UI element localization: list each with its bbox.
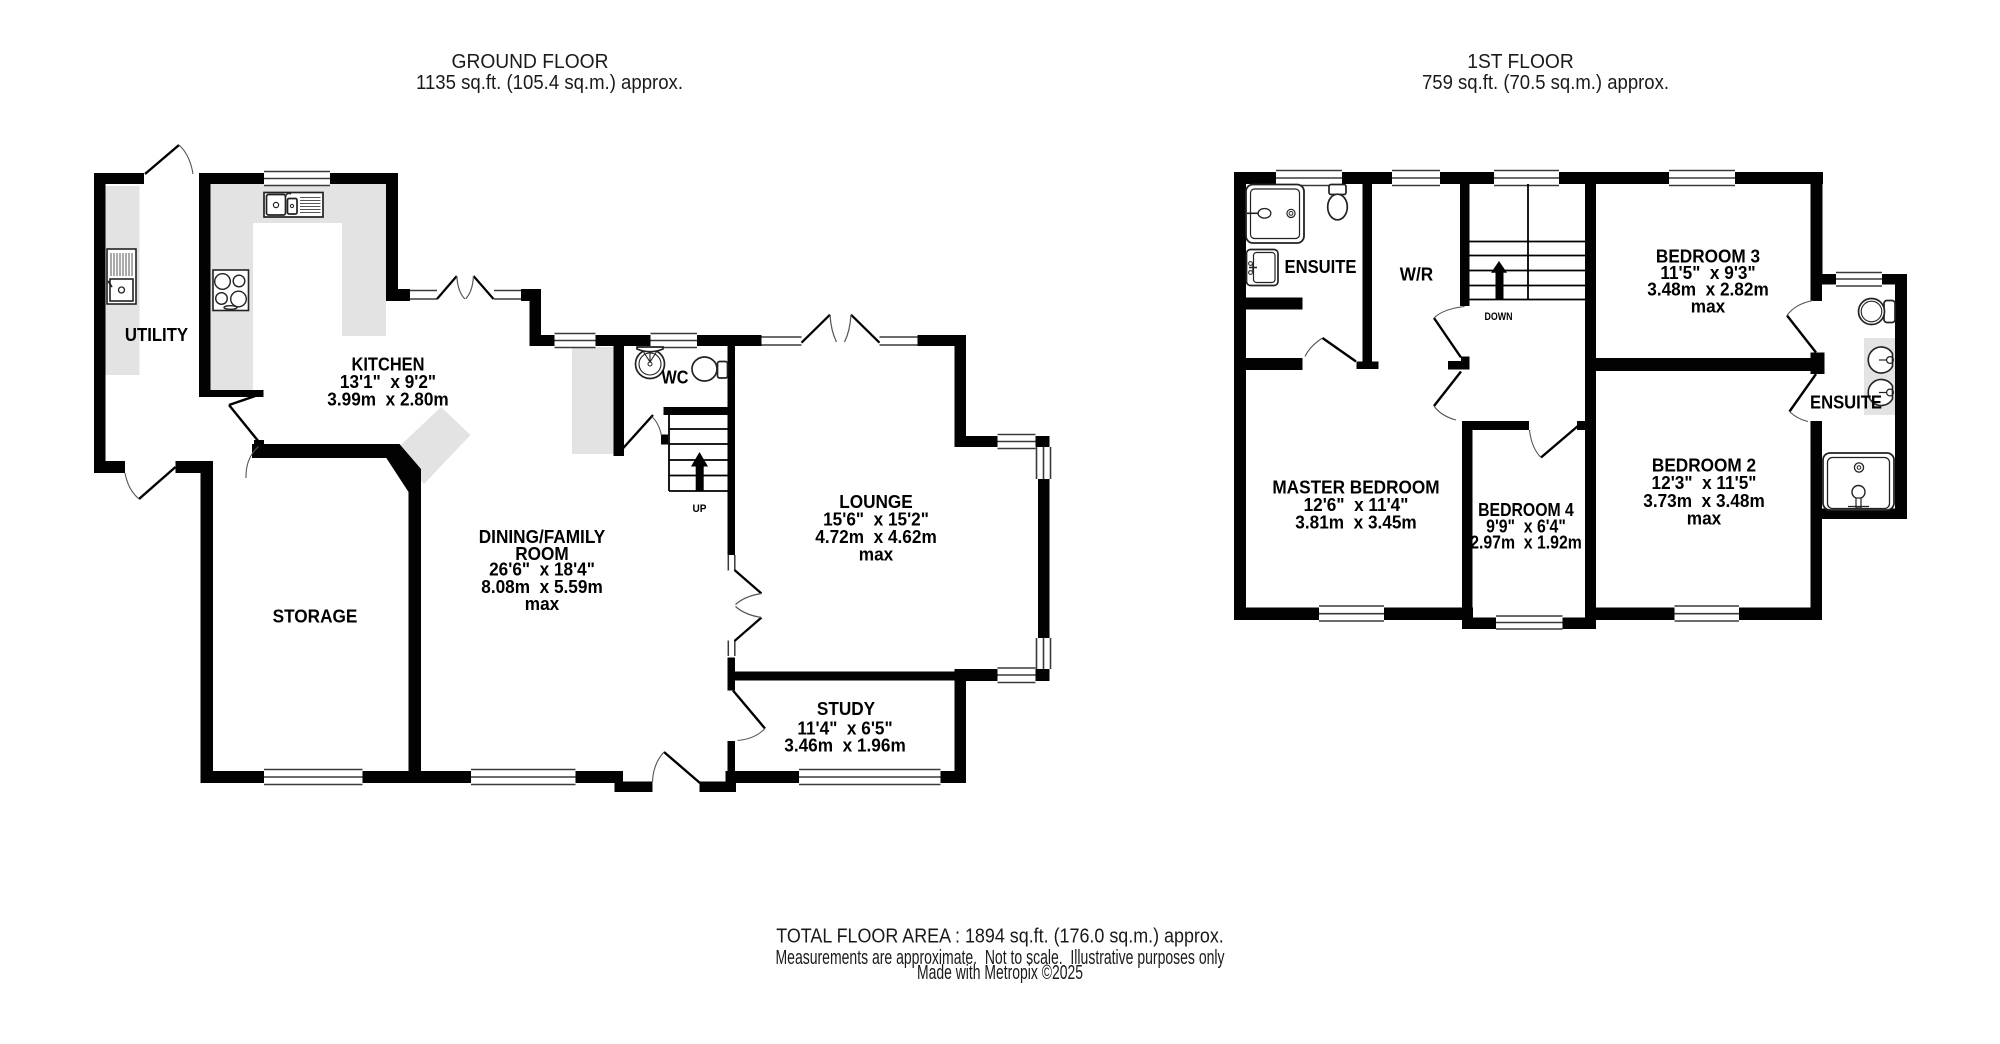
svg-text:W/R: W/R bbox=[1400, 264, 1433, 285]
svg-text:STORAGE: STORAGE bbox=[273, 606, 358, 627]
svg-text:max: max bbox=[525, 593, 560, 614]
svg-text:2.97m x 1.92m: 2.97m x 1.92m bbox=[1470, 532, 1582, 553]
svg-text:Made with Metropix ©2025: Made with Metropix ©2025 bbox=[917, 962, 1083, 984]
svg-text:TOTAL FLOOR AREA : 1894 sq.ft.: TOTAL FLOOR AREA : 1894 sq.ft. (176.0 sq… bbox=[776, 926, 1224, 948]
svg-text:1ST FLOOR: 1ST FLOOR bbox=[1467, 51, 1574, 73]
svg-text:DOWN: DOWN bbox=[1485, 311, 1513, 323]
svg-text:max: max bbox=[859, 544, 894, 565]
svg-text:759 sq.ft. (70.5 sq.m.) approx: 759 sq.ft. (70.5 sq.m.) approx. bbox=[1422, 72, 1669, 94]
svg-text:WC: WC bbox=[662, 367, 689, 388]
svg-text:1135 sq.ft. (105.4 sq.m.) appr: 1135 sq.ft. (105.4 sq.m.) approx. bbox=[416, 72, 683, 94]
svg-text:3.99m x 2.80m: 3.99m x 2.80m bbox=[327, 389, 448, 410]
svg-text:STUDY: STUDY bbox=[817, 698, 876, 719]
svg-text:ENSUITE: ENSUITE bbox=[1285, 256, 1357, 277]
svg-text:GROUND FLOOR: GROUND FLOOR bbox=[452, 51, 609, 73]
svg-text:UP: UP bbox=[693, 503, 707, 515]
svg-text:UTILITY: UTILITY bbox=[125, 324, 189, 345]
svg-text:max: max bbox=[1687, 507, 1722, 528]
svg-text:max: max bbox=[1691, 295, 1726, 316]
svg-text:3.81m x 3.45m: 3.81m x 3.45m bbox=[1295, 512, 1416, 533]
svg-text:ENSUITE: ENSUITE bbox=[1810, 392, 1882, 413]
svg-text:3.46m x 1.96m: 3.46m x 1.96m bbox=[784, 735, 906, 756]
